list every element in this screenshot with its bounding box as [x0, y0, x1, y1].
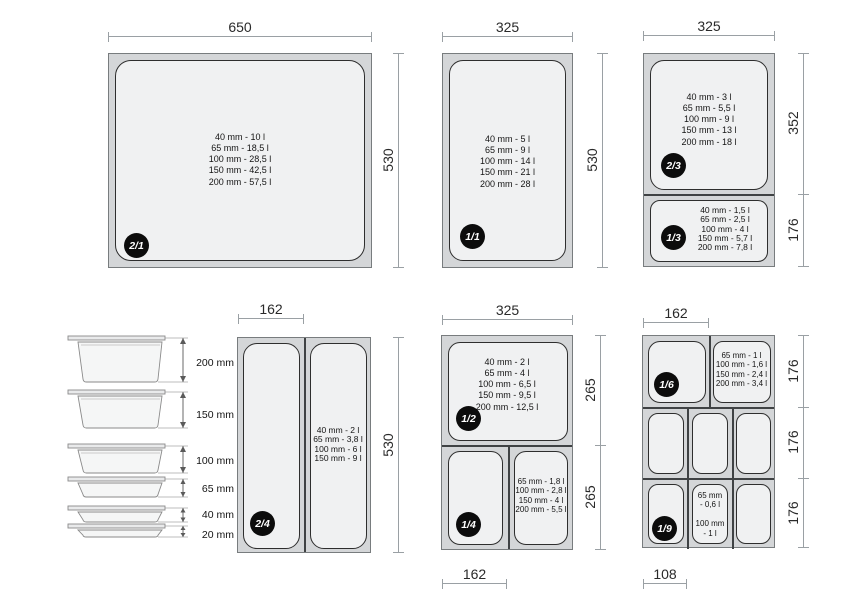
dim-label-265: 265 [583, 360, 597, 420]
dim-label-162: 162 [643, 306, 709, 321]
pan-gn13-capacities: 40 mm - 1,5 l 65 mm - 2,5 l 100 mm - 4 l… [678, 206, 772, 253]
dim-label-530: 530 [381, 130, 395, 190]
dim-label-530: 530 [585, 130, 599, 190]
dim-tick [442, 32, 443, 42]
dim-line [643, 35, 775, 36]
dim-line [803, 335, 804, 548]
pan-side-100 [68, 444, 188, 473]
dim-width-gn23: 325 [643, 19, 775, 45]
dim-label-352: 352 [786, 93, 800, 153]
pan-gn24-capacities: 40 mm - 2 l 65 mm - 3,8 l 100 mm - 6 l 1… [306, 426, 370, 463]
dim-tick [643, 31, 644, 41]
pan-divider [732, 409, 734, 478]
pan-side-150 [68, 390, 188, 428]
dim-height-gn21: 530 [384, 53, 406, 268]
depth-label-150: 150 mm [182, 409, 234, 421]
dim-tick [597, 267, 608, 268]
pan-divider [687, 480, 689, 549]
pan-side-20 [68, 524, 188, 537]
dim-label-325: 325 [643, 19, 775, 34]
dim-label-162: 162 [238, 302, 304, 317]
dim-tick [442, 315, 443, 325]
pan-gn23-capacities: 40 mm - 3 l 65 mm - 5,5 l 100 mm - 9 l 1… [644, 92, 774, 148]
pan-divider [709, 336, 711, 407]
dim-tick [371, 32, 372, 42]
dim-width-gn12: 325 [442, 303, 573, 329]
dim-tick [798, 53, 809, 54]
pan-gn16-badge: 1/6 [654, 372, 679, 397]
dim-tick [597, 53, 608, 54]
pan-divider [442, 445, 572, 447]
dim-tick [643, 579, 644, 589]
dim-width-gn14: 162 [442, 567, 507, 593]
dim-tick [595, 445, 606, 446]
pan-gn16-capacities: 65 mm - 1 l 100 mm - 1,6 l 150 mm - 2,4 … [709, 351, 774, 389]
dim-label-176: 176 [786, 412, 800, 472]
pan-depth-stack-illustration [55, 325, 195, 555]
dim-line [442, 319, 573, 320]
pan-divider [687, 409, 689, 478]
dim-width-gn19: 108 [643, 567, 687, 593]
dim-label-530: 530 [381, 415, 395, 475]
pan-gn11: 40 mm - 5 l 65 mm - 9 l 100 mm - 14 l 15… [442, 53, 573, 268]
dim-line [398, 53, 399, 268]
dim-tick [798, 407, 809, 408]
dim-tick [393, 337, 404, 338]
dim-height-gn12-gn14: 265 265 [586, 335, 608, 550]
pan-gn12-capacities: 40 mm - 2 l 65 mm - 4 l 100 mm - 6,5 l 1… [442, 357, 572, 413]
dim-tick [798, 547, 809, 548]
pan-gn14-badge: 1/4 [456, 512, 481, 537]
dim-tick [572, 32, 573, 42]
dim-tick [442, 579, 443, 589]
dim-label-325: 325 [442, 20, 573, 35]
pan-gn19-capacities: 65 mm - 0,6 l 100 mm - 1 l [690, 491, 730, 538]
dim-label-176: 176 [786, 341, 800, 401]
depth-label-200: 200 mm [182, 357, 234, 369]
pan-cell-inner [648, 413, 684, 474]
dim-line [643, 583, 687, 584]
dim-width-gn24: 162 [238, 302, 304, 328]
dim-line [600, 335, 601, 550]
dim-line [442, 583, 507, 584]
dim-height-gn24: 530 [384, 337, 406, 553]
dim-line [803, 53, 804, 267]
dim-label-176: 176 [786, 200, 800, 260]
pan-gn13-badge: 1/3 [661, 225, 686, 250]
dim-width-gn11: 325 [442, 20, 573, 46]
dim-tick [238, 314, 239, 324]
pan-divider [643, 478, 774, 480]
dim-label-325: 325 [442, 303, 573, 318]
pan-gn23-badge: 2/3 [661, 153, 686, 178]
pan-gn24: 40 mm - 2 l 65 mm - 3,8 l 100 mm - 6 l 1… [237, 337, 371, 553]
dim-tick [798, 266, 809, 267]
dim-tick [108, 32, 109, 42]
dim-line [398, 337, 399, 553]
dim-height-gn23-gn13: 352 176 [789, 53, 811, 267]
pan-gn12-gn14: 40 mm - 2 l 65 mm - 4 l 100 mm - 6,5 l 1… [441, 335, 573, 550]
dim-label-176: 176 [786, 483, 800, 543]
dim-label-650: 650 [108, 20, 372, 35]
pan-gn23-gn13: 40 mm - 3 l 65 mm - 5,5 l 100 mm - 9 l 1… [643, 53, 775, 267]
dim-line [602, 53, 603, 268]
pan-gn21-capacities: 40 mm - 10 l 65 mm - 18,5 l 100 mm - 28,… [109, 132, 371, 188]
pan-gn14-capacities: 65 mm - 1,8 l 100 mm - 2,8 l 150 mm - 4 … [510, 477, 572, 515]
depth-label-20: 20 mm [182, 529, 234, 541]
dim-tick [798, 335, 809, 336]
dim-tick [393, 267, 404, 268]
dim-tick [393, 53, 404, 54]
depth-label-65: 65 mm [182, 483, 234, 495]
dim-width-gn21: 650 [108, 20, 372, 46]
pan-cell-inner [736, 484, 771, 544]
pan-divider [643, 407, 774, 409]
dim-height-gn11: 530 [588, 53, 610, 268]
dim-line [108, 36, 372, 37]
pan-side-65 [68, 477, 188, 497]
dim-tick [643, 318, 644, 328]
dim-line [643, 322, 709, 323]
dim-label-162: 162 [442, 567, 507, 582]
dim-tick [708, 318, 709, 328]
depth-label-100: 100 mm [182, 455, 234, 467]
pan-gn21: 40 mm - 10 l 65 mm - 18,5 l 100 mm - 28,… [108, 53, 372, 268]
pan-gn12-badge: 1/2 [456, 406, 481, 431]
dim-tick [303, 314, 304, 324]
dim-tick [798, 194, 809, 195]
pan-gn11-capacities: 40 mm - 5 l 65 mm - 9 l 100 mm - 14 l 15… [443, 134, 572, 190]
dim-tick [798, 478, 809, 479]
pan-cell-inner [692, 413, 728, 474]
dim-tick [595, 335, 606, 336]
dim-tick [393, 552, 404, 553]
dim-line [442, 36, 573, 37]
pan-gn11-badge: 1/1 [460, 224, 485, 249]
dim-label-265: 265 [583, 467, 597, 527]
dim-tick [774, 31, 775, 41]
gastronorm-sizes-diagram: 650 325 325 40 mm - 10 l 65 mm - 18,5 l … [0, 0, 864, 602]
dim-tick [572, 315, 573, 325]
dim-tick [506, 579, 507, 589]
pan-gn24-badge: 2/4 [250, 511, 275, 536]
dim-tick [686, 579, 687, 589]
dim-height-gn16-gn19: 176 176 176 [789, 335, 811, 548]
dim-tick [595, 549, 606, 550]
pan-gn16-inner [648, 341, 706, 403]
dim-label-108: 108 [643, 567, 687, 582]
dim-width-gn16: 162 [643, 306, 709, 332]
depth-label-40: 40 mm [182, 509, 234, 521]
pan-side-200 [68, 336, 188, 382]
pan-cell-inner [736, 413, 771, 474]
pan-side-40 [68, 506, 188, 522]
pan-gn19-badge: 1/9 [652, 516, 677, 541]
pan-gn21-badge: 2/1 [124, 233, 149, 258]
pan-gn16-gn19: 1/6 65 mm - 1 l 100 mm - 1,6 l 150 mm - … [642, 335, 775, 548]
dim-line [238, 318, 304, 319]
pan-divider [644, 194, 774, 196]
pan-divider [732, 480, 734, 549]
